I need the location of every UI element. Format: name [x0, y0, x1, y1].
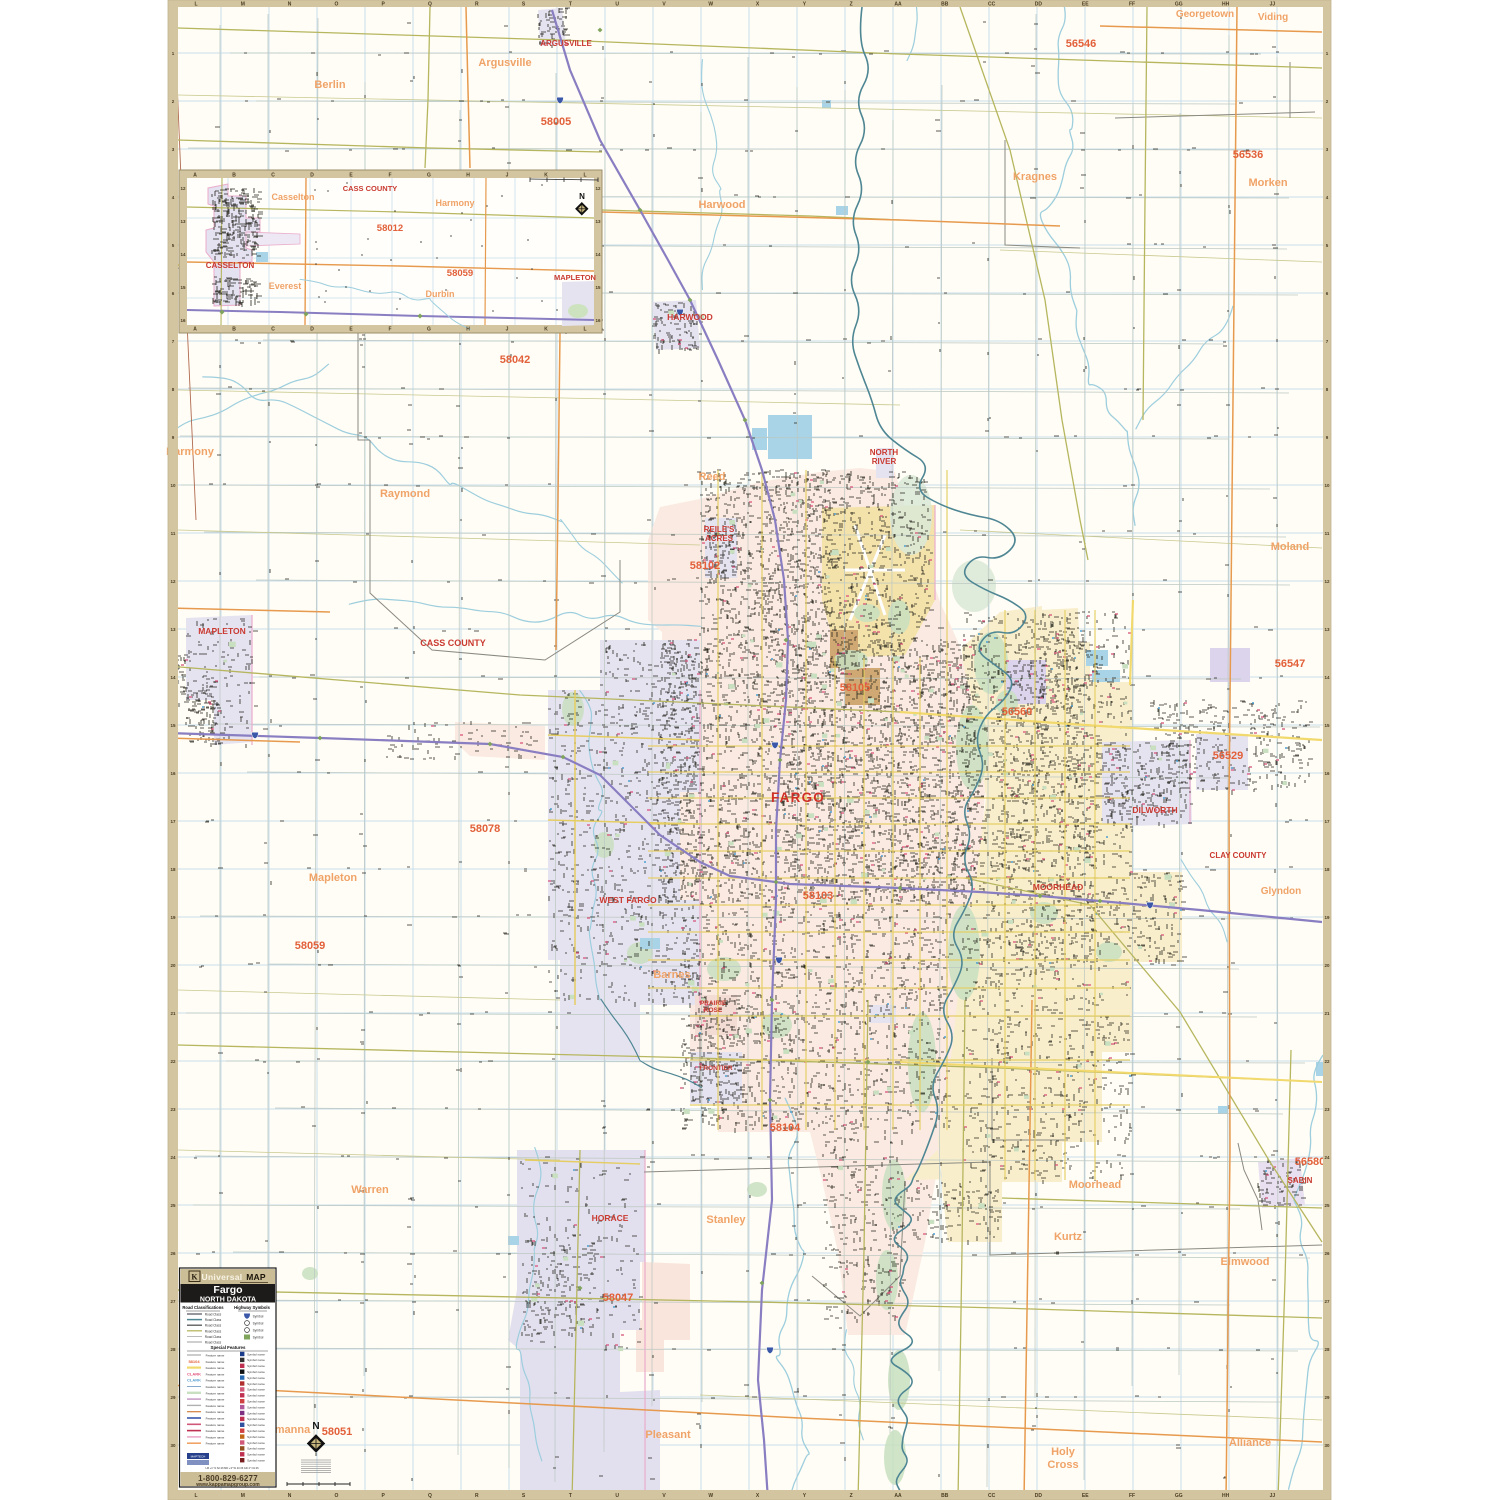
- svg-text:Symbol name: Symbol name: [247, 1370, 265, 1374]
- svg-text:Elmwood: Elmwood: [1221, 1256, 1270, 1268]
- svg-text:O: O: [334, 1493, 338, 1499]
- svg-text:JJ: JJ: [1270, 1493, 1276, 1499]
- svg-text:N: N: [579, 192, 585, 201]
- svg-text:18: 18: [1324, 867, 1330, 872]
- svg-text:U: U: [615, 1493, 619, 1499]
- svg-text:EE: EE: [1082, 1, 1089, 7]
- svg-text:Feature name: Feature name: [206, 1385, 225, 1389]
- svg-text:K: K: [544, 173, 548, 179]
- svg-text:AA: AA: [894, 1493, 902, 1499]
- svg-text:H: H: [466, 327, 470, 333]
- svg-text:22: 22: [1324, 1059, 1330, 1064]
- svg-text:Everest: Everest: [269, 281, 302, 291]
- svg-text:Berlin: Berlin: [314, 79, 345, 91]
- svg-text:Raymond: Raymond: [380, 488, 430, 500]
- svg-text:CLARK: CLARK: [187, 1378, 201, 1383]
- svg-text:12: 12: [170, 579, 176, 584]
- svg-text:A: A: [193, 327, 197, 333]
- svg-text:14: 14: [170, 675, 176, 680]
- svg-text:Symbol: Symbol: [253, 1322, 264, 1326]
- svg-text:24: 24: [1324, 1155, 1330, 1160]
- svg-text:Warren: Warren: [351, 1184, 389, 1196]
- svg-text:SABIN: SABIN: [1288, 1176, 1313, 1185]
- svg-text:Symbol name: Symbol name: [247, 1352, 265, 1356]
- svg-text:CLARK: CLARK: [187, 1371, 201, 1376]
- svg-text:J: J: [506, 173, 509, 179]
- svg-text:CC: CC: [988, 1493, 996, 1499]
- svg-text:29: 29: [1324, 1395, 1330, 1400]
- svg-text:Symbol name: Symbol name: [247, 1459, 265, 1463]
- svg-text:26: 26: [170, 1251, 176, 1256]
- svg-text:19: 19: [170, 915, 176, 920]
- svg-text:L: L: [583, 173, 586, 179]
- svg-text:MOORHEAD: MOORHEAD: [1033, 882, 1084, 892]
- svg-text:15: 15: [595, 285, 601, 290]
- svg-text:21: 21: [1324, 1011, 1330, 1016]
- svg-text:28: 28: [170, 1347, 176, 1352]
- svg-text:Feature name: Feature name: [206, 1435, 225, 1439]
- svg-text:Feature name: Feature name: [206, 1379, 225, 1383]
- svg-text:Symbol name: Symbol name: [247, 1376, 265, 1380]
- svg-text:12: 12: [180, 186, 186, 191]
- svg-text:F: F: [388, 327, 391, 333]
- svg-text:Symbol: Symbol: [253, 1315, 264, 1319]
- svg-text:CASS COUNTY: CASS COUNTY: [343, 184, 398, 193]
- svg-text:Symbol name: Symbol name: [247, 1394, 265, 1398]
- svg-text:11: 11: [171, 531, 176, 536]
- svg-text:Symbol name: Symbol name: [247, 1453, 265, 1457]
- svg-text:Kurtz: Kurtz: [1054, 1231, 1083, 1243]
- svg-text:RIVER: RIVER: [872, 457, 897, 466]
- svg-text:58005: 58005: [541, 116, 572, 128]
- svg-text:WEST FARGO: WEST FARGO: [599, 895, 657, 905]
- svg-text:K: K: [544, 327, 548, 333]
- svg-text:Symbol name: Symbol name: [247, 1364, 265, 1368]
- svg-text:Holy: Holy: [1051, 1446, 1076, 1458]
- svg-text:Z: Z: [850, 1, 853, 7]
- svg-text:G: G: [427, 173, 431, 179]
- svg-text:PRAIRIE: PRAIRIE: [700, 1000, 727, 1007]
- svg-text:D: D: [310, 327, 314, 333]
- svg-text:B: B: [232, 327, 236, 333]
- svg-text:14: 14: [180, 252, 186, 257]
- svg-text:Feature name: Feature name: [206, 1429, 225, 1433]
- svg-text:21: 21: [170, 1011, 176, 1016]
- svg-text:Reed: Reed: [699, 471, 726, 483]
- svg-text:56536: 56536: [1233, 149, 1264, 161]
- svg-text:Symbol name: Symbol name: [247, 1400, 265, 1404]
- svg-text:Symbol name: Symbol name: [247, 1411, 265, 1415]
- svg-text:12: 12: [1324, 579, 1330, 584]
- svg-text:13: 13: [595, 219, 601, 224]
- svg-text:Stanley: Stanley: [706, 1214, 746, 1226]
- svg-text:16: 16: [1324, 771, 1330, 776]
- svg-text:13: 13: [180, 219, 186, 224]
- svg-text:Feature name: Feature name: [206, 1404, 225, 1408]
- svg-text:R: R: [475, 1493, 479, 1499]
- svg-text:22: 22: [170, 1059, 176, 1064]
- svg-text:Pleasant: Pleasant: [645, 1429, 691, 1441]
- svg-text:W: W: [708, 1, 713, 7]
- svg-text:GG: GG: [1175, 1, 1183, 7]
- svg-text:56529: 56529: [1213, 750, 1244, 762]
- svg-text:R: R: [475, 1, 479, 7]
- svg-text:MAPLETON: MAPLETON: [198, 626, 246, 636]
- svg-text:G: G: [427, 327, 431, 333]
- svg-text:N: N: [312, 1421, 319, 1432]
- svg-text:Mapleton: Mapleton: [309, 872, 358, 884]
- svg-text:Feature name: Feature name: [206, 1360, 225, 1364]
- svg-text:58051: 58051: [322, 1426, 353, 1438]
- svg-text:56547: 56547: [1275, 658, 1306, 670]
- svg-text:Feature name: Feature name: [206, 1372, 225, 1376]
- svg-text:12: 12: [595, 186, 601, 191]
- svg-text:28: 28: [1324, 1347, 1330, 1352]
- svg-text:27: 27: [170, 1299, 176, 1304]
- svg-text:JJ: JJ: [1270, 1, 1276, 7]
- svg-text:Kragnes: Kragnes: [1013, 171, 1057, 183]
- svg-text:F: F: [388, 173, 391, 179]
- svg-text:LM +1" N 62.2ft MD +3" W 43.: LM +1" N 62.2ft MD +3" W 43.3ft GD 4" N1…: [205, 1466, 258, 1470]
- svg-text:ACRES: ACRES: [705, 534, 734, 543]
- svg-text:16: 16: [170, 771, 176, 776]
- svg-text:C: C: [271, 327, 275, 333]
- svg-text:13: 13: [170, 627, 176, 632]
- svg-text:CLAY COUNTY: CLAY COUNTY: [1210, 851, 1268, 860]
- svg-text:Fargo: Fargo: [213, 1284, 242, 1296]
- svg-text:58105: 58105: [840, 682, 871, 694]
- svg-text:56546: 56546: [1066, 38, 1097, 50]
- svg-text:FARGO: FARGO: [771, 790, 825, 805]
- svg-text:HH: HH: [1222, 1, 1230, 7]
- svg-text:U: U: [615, 1, 619, 7]
- svg-text:Feature name: Feature name: [206, 1391, 225, 1395]
- svg-text:Road Class: Road Class: [205, 1313, 222, 1317]
- svg-text:Barnes: Barnes: [653, 969, 690, 981]
- svg-text:Symbol name: Symbol name: [247, 1435, 265, 1439]
- svg-text:A: A: [193, 173, 197, 179]
- svg-text:BB: BB: [941, 1, 949, 7]
- svg-text:Symbol name: Symbol name: [247, 1429, 265, 1433]
- svg-text:Road Class: Road Class: [205, 1341, 222, 1345]
- svg-text:DD: DD: [1035, 1493, 1043, 1499]
- svg-text:H: H: [466, 173, 470, 179]
- svg-text:Symbol name: Symbol name: [247, 1447, 265, 1451]
- svg-text:16: 16: [180, 318, 186, 323]
- svg-text:CASS COUNTY: CASS COUNTY: [420, 638, 486, 648]
- svg-text:10: 10: [170, 483, 176, 488]
- svg-text:MAPLETON: MAPLETON: [554, 273, 596, 282]
- svg-text:Harwood: Harwood: [698, 199, 745, 211]
- svg-text:Z: Z: [850, 1493, 853, 1499]
- svg-text:24: 24: [170, 1155, 176, 1160]
- svg-text:30: 30: [1324, 1443, 1330, 1448]
- svg-text:K: K: [191, 1273, 198, 1282]
- svg-text:M: M: [241, 1, 245, 7]
- svg-text:58047: 58047: [603, 1292, 634, 1304]
- svg-text:ARGUSVILLE: ARGUSVILLE: [540, 39, 592, 48]
- svg-text:D: D: [310, 173, 314, 179]
- svg-text:HORACE: HORACE: [592, 1213, 629, 1223]
- svg-text:58103: 58103: [803, 890, 834, 902]
- svg-text:Alliance: Alliance: [1229, 1437, 1271, 1449]
- svg-text:CASSELTON: CASSELTON: [206, 261, 255, 270]
- svg-text:Symbol name: Symbol name: [247, 1358, 265, 1362]
- svg-text:C: C: [271, 173, 275, 179]
- svg-text:58012: 58012: [377, 223, 403, 234]
- svg-text:Universal: Universal: [202, 1272, 243, 1282]
- svg-text:Moorhead: Moorhead: [1069, 1179, 1122, 1191]
- svg-text:56560: 56560: [1002, 706, 1033, 718]
- svg-text:18: 18: [170, 867, 176, 872]
- svg-text:L: L: [194, 1, 197, 7]
- svg-text:58059: 58059: [447, 268, 473, 279]
- svg-text:DD: DD: [1035, 1, 1043, 7]
- svg-text:Q: Q: [428, 1, 432, 7]
- svg-text:16: 16: [595, 318, 601, 323]
- svg-text:29: 29: [170, 1395, 176, 1400]
- svg-text:23: 23: [170, 1107, 176, 1112]
- svg-text:Morken: Morken: [1248, 177, 1287, 189]
- svg-text:58104: 58104: [770, 1122, 801, 1134]
- svg-text:14: 14: [1324, 675, 1330, 680]
- svg-text:MAP: MAP: [246, 1272, 266, 1282]
- svg-text:Feature name: Feature name: [206, 1366, 225, 1370]
- svg-text:O: O: [334, 1, 338, 7]
- svg-text:Cross: Cross: [1047, 1459, 1078, 1471]
- svg-text:www.kappamapgroup.com: www.kappamapgroup.com: [195, 1482, 260, 1488]
- svg-text:Symbol: Symbol: [253, 1336, 264, 1340]
- svg-text:REILE'S: REILE'S: [704, 525, 735, 534]
- svg-text:HH: HH: [1222, 1493, 1230, 1499]
- svg-text:Casselton: Casselton: [271, 192, 314, 202]
- svg-text:19: 19: [1324, 915, 1330, 920]
- svg-text:Glyndon: Glyndon: [1261, 886, 1302, 897]
- svg-text:Symbol name: Symbol name: [247, 1388, 265, 1392]
- svg-text:ROSE: ROSE: [704, 1007, 723, 1014]
- svg-text:Feature name: Feature name: [206, 1417, 225, 1421]
- svg-text:L: L: [583, 327, 586, 333]
- svg-text:T: T: [569, 1, 572, 7]
- svg-text:T: T: [569, 1493, 572, 1499]
- svg-text:25: 25: [170, 1203, 176, 1208]
- svg-text:Feature name: Feature name: [206, 1398, 225, 1402]
- svg-text:HARWOOD: HARWOOD: [667, 312, 713, 322]
- svg-text:Symbol name: Symbol name: [247, 1441, 265, 1445]
- svg-text:27: 27: [1324, 1299, 1330, 1304]
- svg-text:Road Class: Road Class: [205, 1318, 222, 1322]
- svg-text:56580: 56580: [1295, 1156, 1326, 1168]
- svg-text:17: 17: [1324, 819, 1330, 824]
- svg-text:Harmony: Harmony: [435, 198, 474, 208]
- svg-text:15: 15: [180, 285, 186, 290]
- svg-text:BB: BB: [941, 1493, 949, 1499]
- svg-text:NORTH DAKOTA: NORTH DAKOTA: [200, 1297, 256, 1304]
- svg-text:MAPTECH: MAPTECH: [191, 1455, 206, 1459]
- svg-text:J: J: [506, 327, 509, 333]
- svg-text:FRONTIER: FRONTIER: [699, 1065, 733, 1072]
- svg-text:23: 23: [1324, 1107, 1330, 1112]
- svg-text:Symbol name: Symbol name: [247, 1423, 265, 1427]
- svg-text:14: 14: [595, 252, 601, 257]
- svg-text:26: 26: [1324, 1251, 1330, 1256]
- svg-text:58078: 58078: [470, 823, 501, 835]
- svg-text:Special Features: Special Features: [211, 1345, 246, 1350]
- svg-text:Symbol: Symbol: [253, 1329, 264, 1333]
- svg-text:Road Classifications: Road Classifications: [182, 1305, 224, 1310]
- svg-text:Feature name: Feature name: [206, 1354, 225, 1358]
- svg-text:AA: AA: [894, 1, 902, 7]
- svg-text:30: 30: [170, 1443, 176, 1448]
- svg-text:DILWORTH: DILWORTH: [1132, 805, 1177, 815]
- svg-text:NORTH: NORTH: [870, 448, 899, 457]
- svg-text:FF: FF: [1129, 1493, 1135, 1499]
- svg-text:Argusville: Argusville: [478, 57, 531, 69]
- svg-text:W: W: [708, 1493, 713, 1499]
- svg-text:Viding: Viding: [1258, 12, 1288, 23]
- svg-text:CC: CC: [988, 1, 996, 7]
- svg-text:L: L: [194, 1493, 197, 1499]
- svg-text:25: 25: [1324, 1203, 1330, 1208]
- svg-text:Road Class: Road Class: [205, 1329, 222, 1333]
- svg-text:Durbin: Durbin: [426, 289, 455, 299]
- svg-text:11: 11: [1325, 531, 1330, 536]
- svg-text:Moland: Moland: [1271, 541, 1310, 553]
- svg-text:Road Class: Road Class: [205, 1324, 222, 1328]
- svg-text:Feature name: Feature name: [206, 1410, 225, 1414]
- svg-text:Q: Q: [428, 1493, 432, 1499]
- svg-text:58102: 58102: [690, 560, 721, 572]
- svg-text:Road Class: Road Class: [205, 1335, 222, 1339]
- svg-text:58059: 58059: [295, 940, 326, 952]
- svg-text:Symbol name: Symbol name: [247, 1405, 265, 1409]
- svg-text:17: 17: [170, 819, 176, 824]
- svg-text:15: 15: [170, 723, 176, 728]
- svg-text:FF: FF: [1129, 1, 1135, 7]
- svg-text:20: 20: [170, 963, 176, 968]
- svg-text:10: 10: [1324, 483, 1330, 488]
- svg-text:58104: 58104: [188, 1359, 200, 1364]
- svg-text:B: B: [232, 173, 236, 179]
- svg-text:Georgetown: Georgetown: [1176, 9, 1234, 20]
- svg-text:15: 15: [1324, 723, 1330, 728]
- svg-text:Symbol name: Symbol name: [247, 1417, 265, 1421]
- svg-text:13: 13: [1324, 627, 1330, 632]
- svg-text:58042: 58042: [500, 354, 531, 366]
- svg-text:EE: EE: [1082, 1493, 1089, 1499]
- svg-text:Symbol name: Symbol name: [247, 1382, 265, 1386]
- svg-text:Highway Symbols: Highway Symbols: [234, 1305, 271, 1310]
- svg-text:Feature name: Feature name: [206, 1423, 225, 1427]
- svg-text:20: 20: [1324, 963, 1330, 968]
- svg-text:N: N: [288, 1, 292, 7]
- svg-text:N: N: [288, 1493, 292, 1499]
- svg-text:GG: GG: [1175, 1493, 1183, 1499]
- svg-text:M: M: [241, 1493, 245, 1499]
- svg-text:Feature name: Feature name: [206, 1442, 225, 1446]
